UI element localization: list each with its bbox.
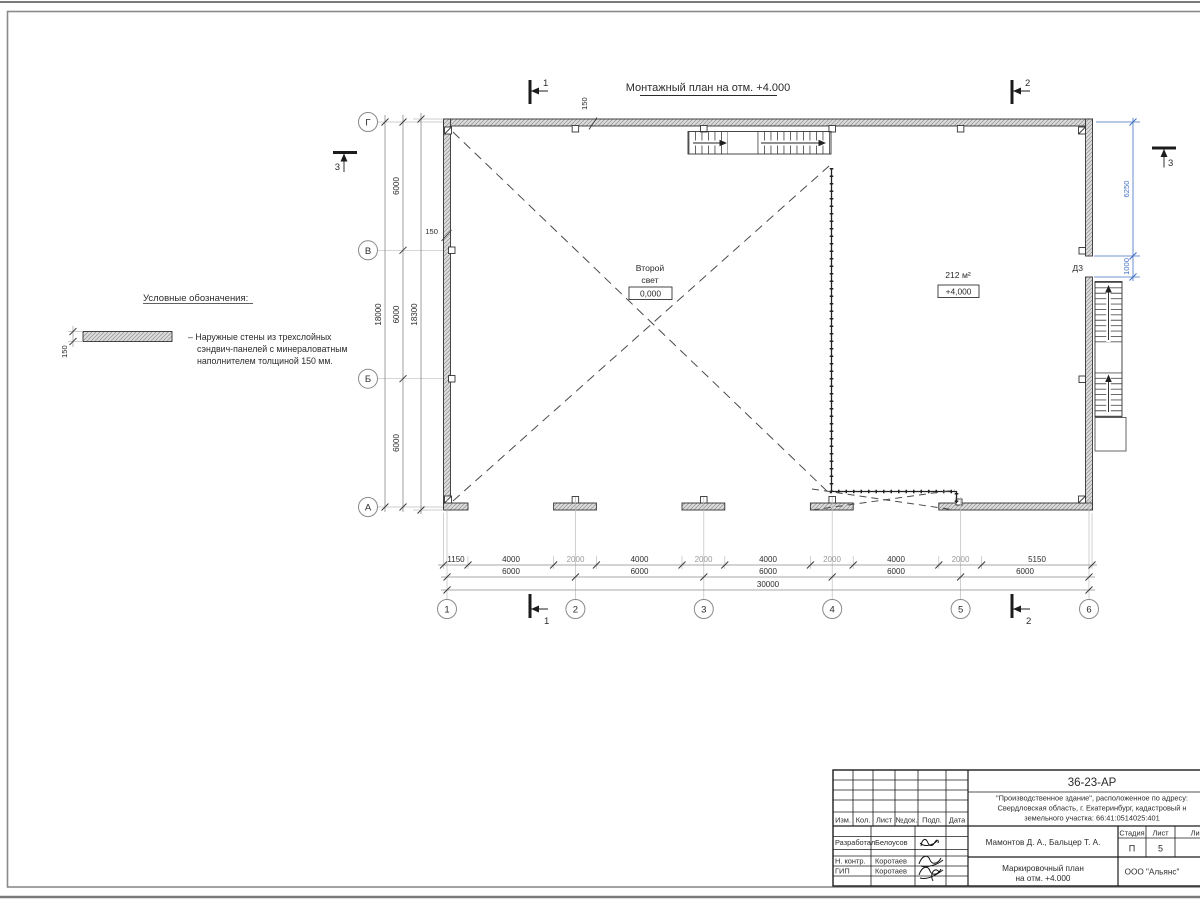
tb-role-gip: ГИП [835,867,850,876]
wall-thk-left: 150 [425,227,438,236]
dims-right-blue: 6250 1000 [1094,118,1140,281]
grid-row-b: Б [365,374,371,385]
legend-line1: – Наружные стены из трехслойных [188,332,332,342]
tb-desc-line1: "Производственное здание", расположенное… [996,794,1188,803]
section-arrow-icon [531,88,539,95]
legend-item-text: – Наружные стены из трехслойных сэндвич-… [188,332,348,366]
dims-left: 18000 6000 6000 6000 18300 Г В Б А [359,113,444,517]
section-3-right: 3 [1152,148,1176,169]
legend-heading: Условные обозначения: [143,293,248,304]
tb-doc-title1: Маркировочный план [1002,864,1084,873]
cad-canvas: Монтажный план на отм. +4.000 Условные о… [0,0,1200,900]
sheet-frame [0,2,1200,897]
section-arrow-icon [1013,606,1021,613]
wall-right-lower [1086,277,1093,510]
building-walls [444,119,1093,510]
dim-4000: 4000 [759,555,777,564]
wall-thk-top: 150 [580,97,589,110]
dim-1150: 1150 [447,555,465,564]
section-arrow-icon [341,154,348,162]
dim-2000: 2000 [823,555,841,564]
tb-company: ООО "Альянс" [1125,868,1180,877]
grid-col-1: 1 [444,605,449,616]
stair-top [688,132,831,155]
room-left-line1: Второй [636,263,665,273]
dim-6000: 6000 [392,434,401,452]
dim-6000: 6000 [392,177,401,195]
grid-row-g: Г [365,118,370,129]
tb-desc-line2: Свердловская область, г. Екатеринбург, к… [998,804,1187,813]
room-left-label: Второй свет 0,000 [629,263,672,300]
wall-bottom-segments [444,503,1093,510]
dim-6250: 6250 [1122,181,1131,198]
tb-header-ndok: №док. [896,816,918,825]
tb-header-kol: Кол. [856,816,871,825]
section-2-label: 2 [1025,78,1030,89]
dim-5150: 5150 [1028,555,1046,564]
column-markers [449,126,1086,506]
section-3-label: 3 [1168,158,1173,169]
grid-col-5: 5 [958,605,963,616]
tb-sheet-label: Лист [1152,829,1169,838]
legend-line2: сэндвич-панелей с минераловатным [197,344,348,354]
grid-col-3: 3 [701,605,706,616]
grid-col-4: 4 [830,605,835,616]
stair-landing [1095,418,1126,452]
section-arrow-icon [531,606,539,613]
room-right-label: 212 м² +4,000 [938,270,979,298]
grid-row-v: В [365,246,371,257]
tb-authors: Мамонтов Д. А., Бальцер Т. А. [986,838,1101,847]
dim-4000: 4000 [631,555,649,564]
tb-header-data: Дата [949,816,966,825]
tb-sheet-value: 5 [1158,844,1163,854]
legend-line3: наполнителем толщиной 150 мм. [197,356,333,366]
section-3-left: 3 [333,153,357,174]
section-1-label: 1 [543,78,548,89]
void-cross-lines [453,132,955,510]
grid-row-a: А [365,503,372,514]
section-3-label: 3 [335,162,340,173]
title-block: Изм. Кол. Лист №док. Подп. Дата Разработ… [833,770,1200,886]
section-1-label: 1 [544,616,549,627]
mezzanine-railing [832,168,957,503]
section-1-bottom: 1 [530,594,549,627]
legend-wall-thickness: 150 [60,345,69,358]
tb-name-korotaev2: Коротаев [875,867,907,876]
dim-6000: 6000 [392,305,401,323]
room-right-level: +4,000 [946,287,972,297]
stair-exterior-right [1095,282,1126,452]
dim-18300: 18300 [410,303,419,326]
room-left-level: 0,000 [640,289,661,299]
section-1-top: 1 [530,78,548,104]
section-arrow-icon [1013,88,1021,95]
dim-30000: 30000 [757,580,780,589]
section-2-label: 2 [1026,616,1031,627]
door-label: Д3 [1072,263,1083,273]
wall-top [444,119,1093,126]
dim-2000: 2000 [567,555,585,564]
legend: Условные обозначения: 150 – Наружные сте… [60,293,348,366]
drawing-sheet: Монтажный план на отм. +4.000 Условные о… [0,0,1200,900]
tb-sheets-label: Лис [1191,829,1200,838]
room-left-line2: свет [641,275,658,285]
dim-6000: 6000 [887,567,905,576]
section-markers: 1 1 2 2 3 3 [333,78,1176,627]
dim-6000: 6000 [631,567,649,576]
wall-right-upper [1086,119,1093,256]
plan-title-text: Монтажный план на отм. +4.000 [626,82,790,94]
dim-1000: 1000 [1122,258,1131,275]
tb-header-list: Лист [876,816,893,825]
dim-6000: 6000 [502,567,520,576]
dim-2000: 2000 [952,555,970,564]
wall-left [444,119,451,510]
tb-role-razrabotal: Разработал [835,838,875,847]
section-2-bottom: 2 [1012,594,1031,627]
plan-title: Монтажный план на отм. +4.000 [626,82,790,96]
tb-role-nkontr: Н. контр. [835,857,866,866]
tb-stage-value: П [1129,844,1135,854]
grid-col-6: 6 [1086,605,1091,616]
section-arrow-icon [1161,149,1168,157]
stair-arrow-icon [1105,285,1112,293]
tb-project-code: 36-23-АР [1068,777,1117,789]
tb-doc-title2: на отм. +4.000 [1016,874,1071,883]
dim-18000: 18000 [374,303,383,326]
dim-2000: 2000 [695,555,713,564]
tb-header-podp: Подп. [922,816,942,825]
tb-stage-label: Стадия [1119,829,1144,838]
dims-bottom: 1150 4000 2000 4000 2000 4000 2000 4000 … [438,497,1099,619]
tb-name-korotaev: Коротаев [875,857,907,866]
legend-wall-symbol: 150 [60,326,172,358]
room-right-area: 212 м² [945,270,971,280]
tb-desc-line3: земельного участка: 66:41:0514025:401 [1024,814,1159,823]
section-2-top: 2 [1012,78,1030,104]
grid-col-2: 2 [573,605,578,616]
tb-header-izm: Изм. [835,816,851,825]
dim-4000: 4000 [502,555,520,564]
dim-6000: 6000 [759,567,777,576]
tb-name-belousov: Белоусов [875,838,908,847]
dim-6000: 6000 [1016,567,1034,576]
dim-4000: 4000 [887,555,905,564]
corner-column-markers [445,127,1086,503]
